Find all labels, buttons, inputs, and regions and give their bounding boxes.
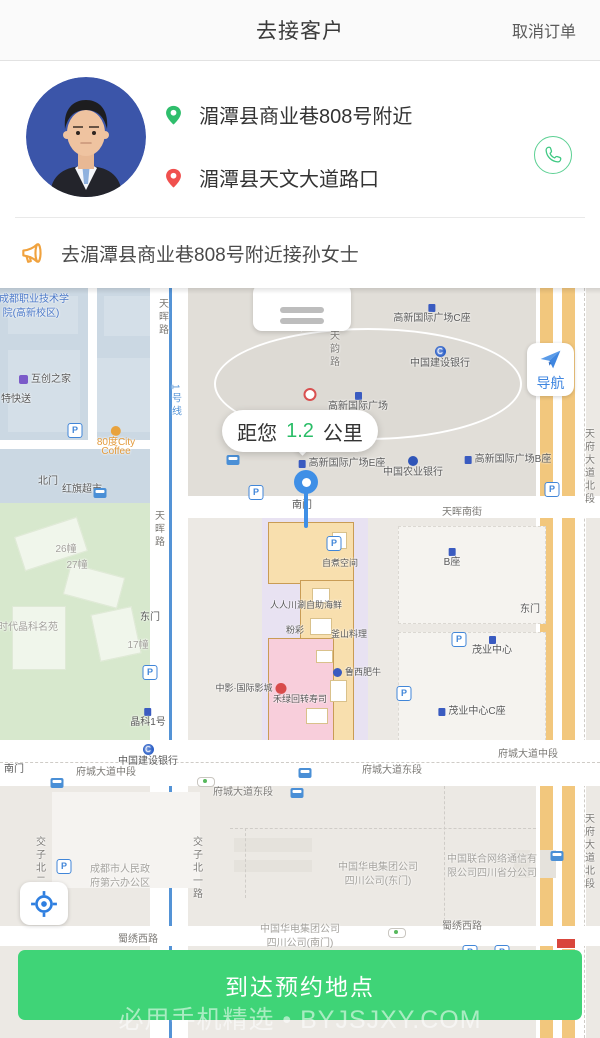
megaphone-icon	[18, 237, 50, 269]
map-label: 茂业中心C座	[438, 706, 505, 718]
shop-icon	[333, 668, 342, 677]
bus-stop-icon	[94, 488, 107, 498]
map-label: 晶科1号	[130, 708, 166, 729]
map-label	[68, 423, 83, 438]
paper-plane-icon	[538, 347, 563, 372]
map-label: 院(高新校区)	[3, 308, 60, 320]
bus-stop-icon	[299, 768, 312, 778]
map-label: 特快送	[1, 394, 31, 406]
parking-icon	[452, 632, 467, 647]
distance-value: 1.2	[286, 420, 314, 443]
map-label: 1号线	[169, 384, 181, 419]
map-label	[388, 928, 406, 938]
map-label: 天府大道北段	[582, 813, 594, 891]
map-shape	[8, 350, 80, 432]
navigate-button[interactable]: 导航	[527, 343, 574, 396]
parking-icon	[143, 665, 158, 680]
locate-me-button[interactable]	[20, 882, 68, 925]
redb-icon	[304, 388, 317, 401]
map-label: 时代晶科名苑	[0, 622, 58, 634]
map-label: 交子北一路	[190, 836, 202, 901]
road-shield-badge	[556, 938, 576, 949]
map-shape	[230, 828, 536, 829]
bus-stop-icon	[227, 455, 240, 465]
map-label	[551, 851, 564, 861]
bankc-icon	[435, 346, 446, 357]
parking-icon	[57, 859, 72, 874]
map-label: 高新国际广场E座	[299, 458, 386, 470]
map-label	[327, 536, 342, 551]
bldg-icon	[489, 636, 496, 644]
bus-stop-icon	[551, 851, 564, 861]
map-road	[88, 288, 97, 448]
map-label: 天晖南街	[442, 507, 482, 519]
map-label: 鲁西肥牛	[333, 667, 381, 677]
map-shape	[444, 786, 445, 926]
customer-card: 湄潭县商业巷808号附近 湄潭县天文大道路口	[0, 60, 600, 218]
redc-icon	[276, 683, 287, 694]
map-label: 南门	[4, 764, 24, 776]
map-shape	[12, 606, 66, 670]
bldg-icon	[145, 708, 152, 716]
map-label: 南门	[292, 500, 312, 512]
purple-icon	[19, 375, 28, 384]
dropoff-address: 湄潭县天文大道路口	[199, 163, 379, 192]
bldg-icon	[299, 460, 306, 468]
navigate-label: 导航	[537, 373, 565, 393]
map-shape	[306, 708, 328, 724]
map-label: 府城大道东段	[213, 787, 273, 799]
dropoff-row: 湄潭县天文大道路口	[163, 163, 379, 192]
pickup-notice: 去湄潭县商业巷808号附近接孙女士	[0, 218, 600, 288]
map-label: 天晖路	[152, 510, 164, 549]
map-label	[291, 788, 304, 798]
traffic-signal-icon	[197, 777, 215, 787]
arrive-pickup-button[interactable]: 到达预约地点	[18, 950, 582, 1020]
parking-icon	[545, 482, 560, 497]
map-label: 自煮空间	[322, 558, 358, 568]
bldg-icon	[438, 708, 445, 716]
dropoff-pin-icon	[163, 165, 184, 191]
pickup-row: 湄潭县商业巷808号附近	[163, 100, 412, 129]
bank-icon	[408, 456, 418, 466]
distance-unit: 公里	[323, 417, 363, 446]
distance-prefix: 距您	[237, 417, 277, 446]
map-label	[397, 686, 412, 701]
map-callout-card	[253, 288, 351, 331]
map-label: 26幢	[55, 544, 76, 556]
map-label: 17幢	[127, 640, 148, 652]
map-label	[249, 485, 264, 500]
map-label: 茂业中心	[472, 636, 512, 657]
map-label: 中国建设银行	[118, 744, 178, 768]
map-label: 高新国际广场C座	[393, 304, 470, 325]
map-shape	[310, 618, 332, 635]
map-label: 27幢	[66, 560, 87, 572]
avatar-portrait	[26, 77, 146, 197]
parking-icon	[397, 686, 412, 701]
map-label: Coffee	[101, 446, 130, 458]
map-label: 天韵路	[327, 330, 339, 369]
map-label	[94, 488, 107, 498]
map-label: 成都职业技术学	[0, 294, 69, 306]
map-label: 北门	[38, 476, 58, 488]
map-label	[143, 665, 158, 680]
map-label: 限公司四川省分公司	[447, 868, 537, 880]
cancel-order-button[interactable]: 取消订单	[506, 0, 582, 60]
map-label: 粉彩	[286, 625, 304, 635]
coffee-icon	[111, 426, 121, 436]
map-label: 蜀绣西路	[442, 921, 482, 933]
map-label: 天晖路	[156, 298, 168, 337]
map-label: 釜山料理	[331, 629, 367, 639]
bldg-icon	[465, 456, 472, 464]
parking-icon	[327, 536, 342, 551]
pickup-marker-stem	[304, 490, 308, 528]
bus-stop-icon	[291, 788, 304, 798]
map-label: 东门	[520, 604, 540, 616]
notice-text: 去湄潭县商业巷808号附近接孙女士	[61, 240, 359, 267]
map-label	[51, 778, 64, 788]
map-label: 府城大道中段	[498, 749, 558, 761]
map-label: 四川公司(东门)	[345, 876, 412, 888]
map-label	[299, 768, 312, 778]
map-label	[197, 777, 215, 787]
map-label: 四川公司(南门)	[267, 938, 334, 950]
map-viewport[interactable]: 成都职业技术学院(高新校区)互创之家特快送80度CityCoffee北门红旗超市…	[0, 288, 600, 1038]
map-label: 府城大道中段	[76, 767, 136, 779]
bldg-icon	[448, 548, 455, 556]
distance-bubble: 距您 1.2 公里	[222, 410, 378, 452]
map-shape	[0, 762, 600, 763]
avatar	[26, 77, 146, 197]
pickup-pin-icon	[163, 102, 184, 128]
parking-icon	[249, 485, 264, 500]
map-label: 中国华电集团公司	[260, 924, 340, 936]
map-label: 人人川涮自助海鲜	[270, 600, 342, 610]
map-label: 中影·国际影城	[216, 683, 287, 694]
bldg-icon	[355, 392, 362, 400]
parking-icon	[68, 423, 83, 438]
map-label	[57, 859, 72, 874]
pickup-marker	[294, 470, 318, 494]
map-label: 中国建设银行	[410, 346, 470, 370]
map-label: 中国联合网络通信有	[447, 854, 537, 866]
map-label: 中国农业银行	[383, 456, 443, 479]
page-title: 去接客户	[256, 15, 344, 45]
crosshair-icon	[29, 889, 59, 919]
header-bar: 去接客户 取消订单	[0, 0, 600, 61]
callout-bar	[280, 307, 324, 313]
map-label: 府第六办公区	[90, 878, 150, 890]
map-label: 禾绿回转寿司	[273, 694, 327, 704]
map-label	[452, 632, 467, 647]
traffic-signal-icon	[388, 928, 406, 938]
map-label	[227, 455, 240, 465]
map-label: B座	[444, 548, 461, 569]
bankc-icon	[143, 744, 154, 755]
map-road-fucheng	[0, 740, 600, 786]
map-label: 天府大道北段	[582, 428, 594, 506]
map-shape	[330, 680, 347, 702]
phone-icon	[542, 144, 564, 166]
map-label: 蜀绣西路	[118, 934, 158, 946]
map-label: 互创之家	[19, 374, 71, 386]
pickup-address: 湄潭县商业巷808号附近	[199, 100, 412, 129]
map-label: 中国华电集团公司	[338, 862, 418, 874]
callout-bar	[280, 318, 324, 324]
map-label	[545, 482, 560, 497]
bldg-icon	[428, 304, 435, 312]
map-label: 高新国际广场B座	[465, 454, 552, 466]
map-shape	[245, 828, 246, 898]
map-shape	[316, 650, 333, 663]
map-label: 东门	[140, 612, 160, 624]
map-label: 府城大道东段	[362, 765, 422, 777]
map-label	[304, 388, 317, 401]
bus-stop-icon	[51, 778, 64, 788]
call-customer-button[interactable]	[534, 136, 572, 174]
map-label: 成都市人民政	[90, 864, 150, 876]
